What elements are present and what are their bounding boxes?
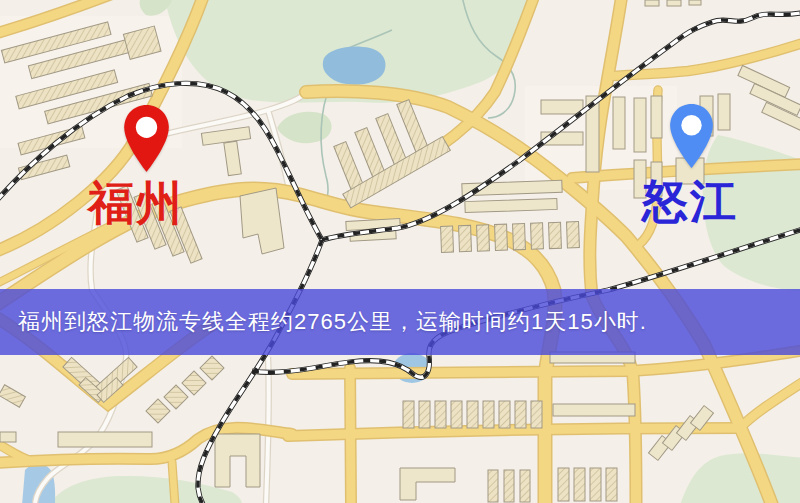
origin-pin-hole — [136, 117, 157, 138]
destination-label: 怒江 — [642, 178, 738, 224]
origin-pin-icon — [122, 103, 171, 174]
destination-pin-hole — [681, 115, 701, 135]
route-info-banner: 福州到怒江物流专线全程约2765公里，运输时间约1天15小时. — [0, 289, 800, 355]
route-info-text: 福州到怒江物流专线全程约2765公里，运输时间约1天15小时. — [0, 307, 647, 337]
map-image — [0, 0, 800, 503]
origin-label: 福州 — [88, 180, 184, 226]
origin-pin-body — [124, 105, 169, 172]
destination-pin-body — [670, 104, 713, 168]
logistics-route-map: 福州 怒江 福州到怒江物流专线全程约2765公里，运输时间约1天15小时. — [0, 0, 800, 503]
destination-pin-icon — [668, 102, 715, 170]
